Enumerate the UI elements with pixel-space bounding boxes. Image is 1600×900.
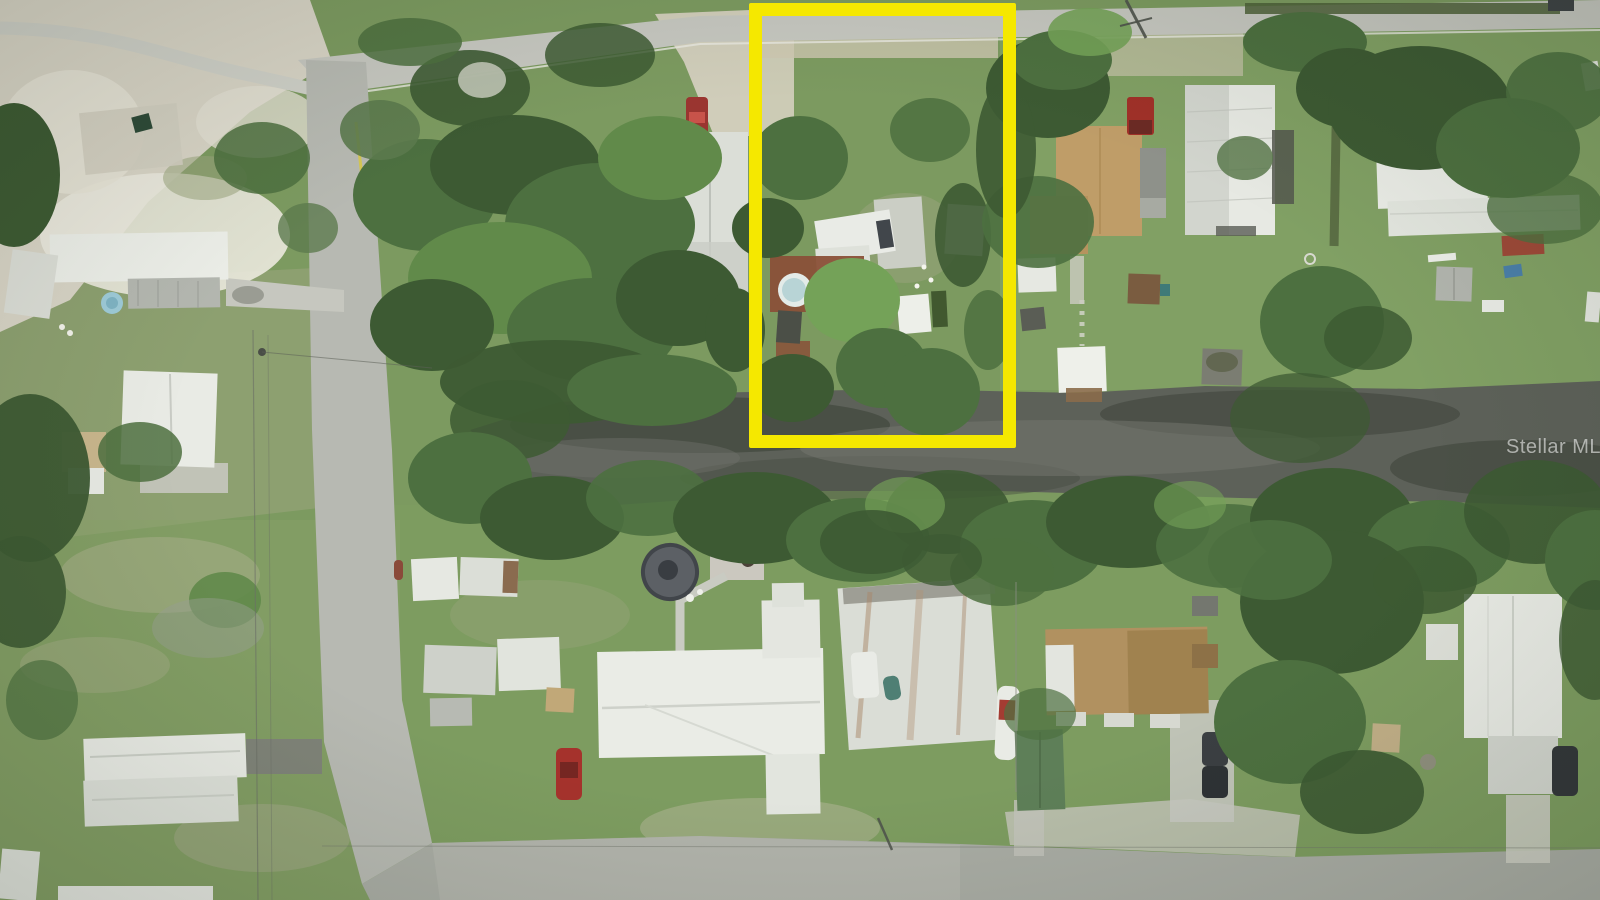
tree-34 <box>1217 136 1273 180</box>
tree-61 <box>98 422 182 482</box>
bldg-bottom-left-2 <box>83 775 239 826</box>
tree-27 <box>890 98 970 162</box>
road-top-median-hedge <box>1245 3 1560 14</box>
shed-s3 <box>430 698 472 727</box>
dock-deck-wood <box>1066 388 1102 402</box>
road-bottom-light <box>432 836 960 900</box>
bldg-left-long <box>50 231 229 282</box>
tree-74 <box>1004 688 1076 740</box>
person-red <box>394 560 403 580</box>
aerial-photo: Stellar MLS <box>0 0 1600 900</box>
tree-24 <box>884 348 980 436</box>
bldg-corner-bl <box>0 848 40 900</box>
tree-12 <box>358 18 462 66</box>
tree-13 <box>340 100 420 160</box>
tree-73 <box>902 534 982 586</box>
shed-s4-tan <box>545 687 574 712</box>
tree-18 <box>278 203 338 253</box>
tree-25 <box>935 183 991 287</box>
suv-dark-2 <box>1202 766 1228 798</box>
shed-s1 <box>411 557 459 601</box>
car-top-right-road <box>1548 0 1574 11</box>
tree-67 <box>1208 520 1332 600</box>
bldg-left-long-metal <box>128 277 221 309</box>
pergola-dark <box>1272 130 1294 204</box>
tree-19 <box>752 116 848 200</box>
hwm-wing-up <box>761 599 820 658</box>
tree-68 <box>1373 546 1477 614</box>
tree-40 <box>1487 172 1600 244</box>
tree-28 <box>705 288 765 372</box>
table-white-2 <box>1482 300 1504 312</box>
tree-7 <box>598 116 722 200</box>
tree-59 <box>1154 481 1226 529</box>
truck-red-top-cab <box>689 112 705 123</box>
van-white <box>850 651 879 699</box>
tree-33 <box>976 82 1036 218</box>
tree-10 <box>567 354 737 426</box>
shed-brown-right <box>1127 273 1160 304</box>
table-white <box>896 294 931 335</box>
driveway-dark-spot <box>232 286 264 304</box>
car-red-bottom-window <box>560 762 578 778</box>
windows-dark <box>1216 226 1256 236</box>
tree-42 <box>1324 306 1412 370</box>
bin-teal <box>1160 284 1170 296</box>
boathouse-dock <box>1057 346 1107 393</box>
concrete-pad-sand <box>79 103 183 175</box>
bldg-bottom-edge <box>58 886 213 900</box>
patio-stone <box>1371 723 1400 752</box>
mls-watermark: Stellar MLS <box>1506 436 1600 459</box>
shed-dark-box <box>776 310 802 344</box>
rv-right-edge <box>1585 291 1600 322</box>
pad-2 <box>1104 713 1134 727</box>
hwm-wing-down <box>765 754 820 815</box>
shed-gray-right-1 <box>1140 148 1166 202</box>
trailer-s2 <box>497 637 561 691</box>
trailer-s1 <box>423 645 497 695</box>
tree-31 <box>1048 8 1132 56</box>
shed-s2-brown <box>502 561 518 594</box>
tree-17 <box>214 122 310 194</box>
dead-tree-white <box>458 62 506 98</box>
house-brown-shade <box>1127 629 1208 714</box>
tree-26 <box>964 290 1012 370</box>
tree-70 <box>1300 750 1424 834</box>
woodpile <box>1192 644 1218 668</box>
tree-65 <box>6 660 78 740</box>
hwm-square <box>772 583 804 608</box>
tree-23 <box>750 354 834 422</box>
tree-20 <box>732 198 804 258</box>
steps-right <box>1070 256 1084 304</box>
tree-43 <box>1230 373 1370 463</box>
shed-gray-right-2 <box>1140 198 1166 218</box>
car-dark-right <box>1552 746 1578 796</box>
aerial-scene <box>0 0 1600 900</box>
kayak-blue <box>1503 264 1522 278</box>
tree-14 <box>545 23 655 87</box>
pad-white-right <box>1426 624 1458 660</box>
dumpster-gray-2 <box>1192 596 1218 616</box>
strip-green <box>931 291 948 328</box>
dead-tree-gray <box>152 598 264 658</box>
bldg-left-small <box>4 249 58 319</box>
truck-red-right-bed <box>1129 120 1152 134</box>
dumpster-canal <box>1020 307 1046 331</box>
old-dock-moss <box>1206 352 1238 372</box>
pad-3 <box>1150 714 1180 728</box>
bldg-bottom-left <box>83 733 246 783</box>
carport-right <box>1488 736 1558 794</box>
driveway-right-2 <box>1506 795 1550 863</box>
